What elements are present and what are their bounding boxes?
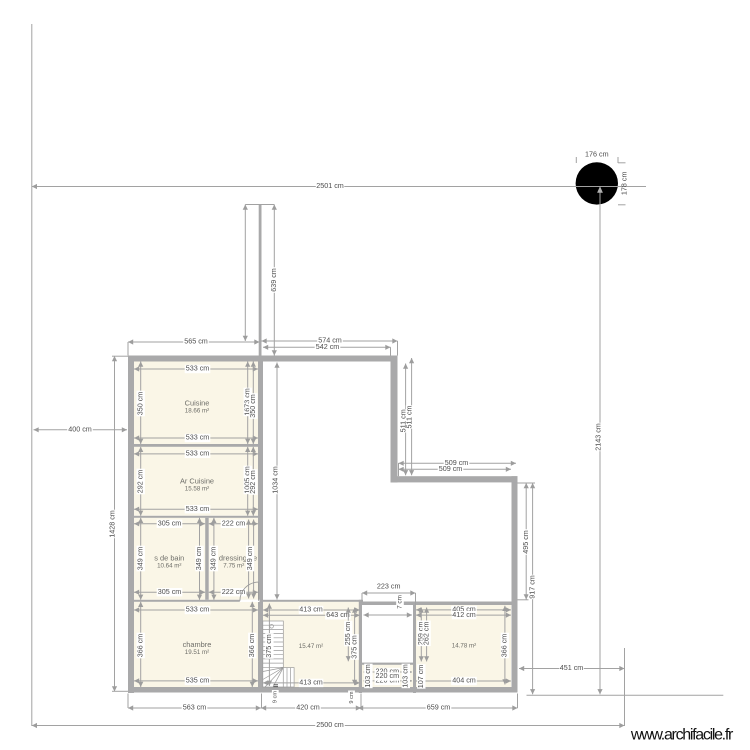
svg-text:349 cm: 349 cm [209, 547, 218, 571]
svg-text:9 cm: 9 cm [349, 691, 355, 703]
svg-text:375 cm: 375 cm [349, 635, 358, 659]
svg-text:chambre: chambre [183, 640, 212, 649]
svg-text:366 cm: 366 cm [135, 634, 144, 658]
svg-text:533 cm: 533 cm [186, 449, 210, 458]
svg-text:1034 cm: 1034 cm [270, 466, 279, 494]
svg-text:533 cm: 533 cm [186, 364, 210, 373]
svg-text:565 cm: 565 cm [184, 337, 208, 346]
svg-text:www.archifacile.fr: www.archifacile.fr [630, 727, 734, 744]
svg-text:413 cm: 413 cm [299, 605, 323, 614]
svg-text:103 cm: 103 cm [363, 664, 372, 688]
svg-text:305 cm: 305 cm [158, 519, 182, 528]
svg-text:917 cm: 917 cm [527, 575, 536, 599]
svg-text:Cuisine: Cuisine [185, 398, 210, 407]
svg-text:107 cm: 107 cm [416, 665, 425, 689]
svg-text:15.58 m²: 15.58 m² [185, 485, 209, 492]
svg-text:223 cm: 223 cm [377, 582, 401, 591]
svg-text:14.78 m²: 14.78 m² [452, 642, 476, 649]
svg-text:375 cm: 375 cm [264, 634, 273, 658]
svg-text:222 cm: 222 cm [222, 587, 246, 596]
svg-text:2143 cm: 2143 cm [593, 423, 602, 451]
svg-text:18.66 m²: 18.66 m² [185, 407, 209, 414]
svg-text:10.64 m²: 10.64 m² [157, 562, 181, 569]
svg-text:262 cm: 262 cm [421, 622, 430, 646]
svg-text:Ar Cuisine: Ar Cuisine [180, 476, 214, 485]
svg-text:451 cm: 451 cm [560, 663, 584, 672]
svg-text:292 cm: 292 cm [135, 470, 144, 494]
svg-text:412 cm: 412 cm [452, 610, 476, 619]
svg-text:533 cm: 533 cm [186, 433, 210, 442]
svg-text:533 cm: 533 cm [186, 605, 210, 614]
svg-text:178 cm: 178 cm [620, 172, 629, 196]
svg-text:7.75 m²: 7.75 m² [223, 563, 244, 570]
svg-text:305 cm: 305 cm [158, 587, 182, 596]
svg-text:176 cm: 176 cm [585, 150, 609, 159]
svg-text:495 cm: 495 cm [521, 530, 530, 554]
svg-text:19.51 m²: 19.51 m² [185, 649, 209, 656]
svg-text:1428 cm: 1428 cm [107, 510, 116, 538]
svg-text:s de bain: s de bain [154, 554, 184, 563]
svg-text:9 cm: 9 cm [273, 691, 279, 703]
svg-text:350 cm: 350 cm [248, 394, 257, 418]
svg-text:643 cm: 643 cm [326, 610, 350, 619]
svg-text:103 cm: 103 cm [401, 664, 410, 688]
svg-text:563 cm: 563 cm [183, 703, 207, 712]
svg-text:511 cm: 511 cm [405, 405, 414, 428]
svg-text:542 cm: 542 cm [316, 342, 340, 351]
svg-text:349 cm: 349 cm [245, 547, 254, 571]
svg-text:349 cm: 349 cm [135, 547, 144, 571]
svg-text:350 cm: 350 cm [135, 392, 144, 416]
svg-text:400 cm: 400 cm [68, 425, 92, 434]
svg-text:639 cm: 639 cm [269, 268, 278, 292]
svg-text:220 cm: 220 cm [376, 671, 400, 680]
svg-text:222 cm: 222 cm [222, 519, 246, 528]
svg-text:404 cm: 404 cm [452, 676, 476, 685]
svg-text:659 cm: 659 cm [427, 703, 451, 712]
svg-text:7 cm: 7 cm [397, 595, 404, 609]
svg-text:366 cm: 366 cm [247, 634, 256, 658]
svg-text:413 cm: 413 cm [299, 678, 323, 687]
svg-text:349 cm: 349 cm [194, 547, 203, 571]
svg-text:292 cm: 292 cm [248, 470, 257, 494]
svg-text:2501 cm: 2501 cm [316, 181, 344, 190]
svg-text:366 cm: 366 cm [500, 634, 509, 658]
svg-text:535 cm: 535 cm [186, 676, 210, 685]
svg-text:420 cm: 420 cm [296, 703, 320, 712]
svg-text:15.47 m²: 15.47 m² [299, 643, 323, 650]
svg-text:2500 cm: 2500 cm [316, 720, 344, 729]
svg-text:533 cm: 533 cm [186, 504, 210, 513]
svg-text:509 cm: 509 cm [439, 464, 463, 473]
